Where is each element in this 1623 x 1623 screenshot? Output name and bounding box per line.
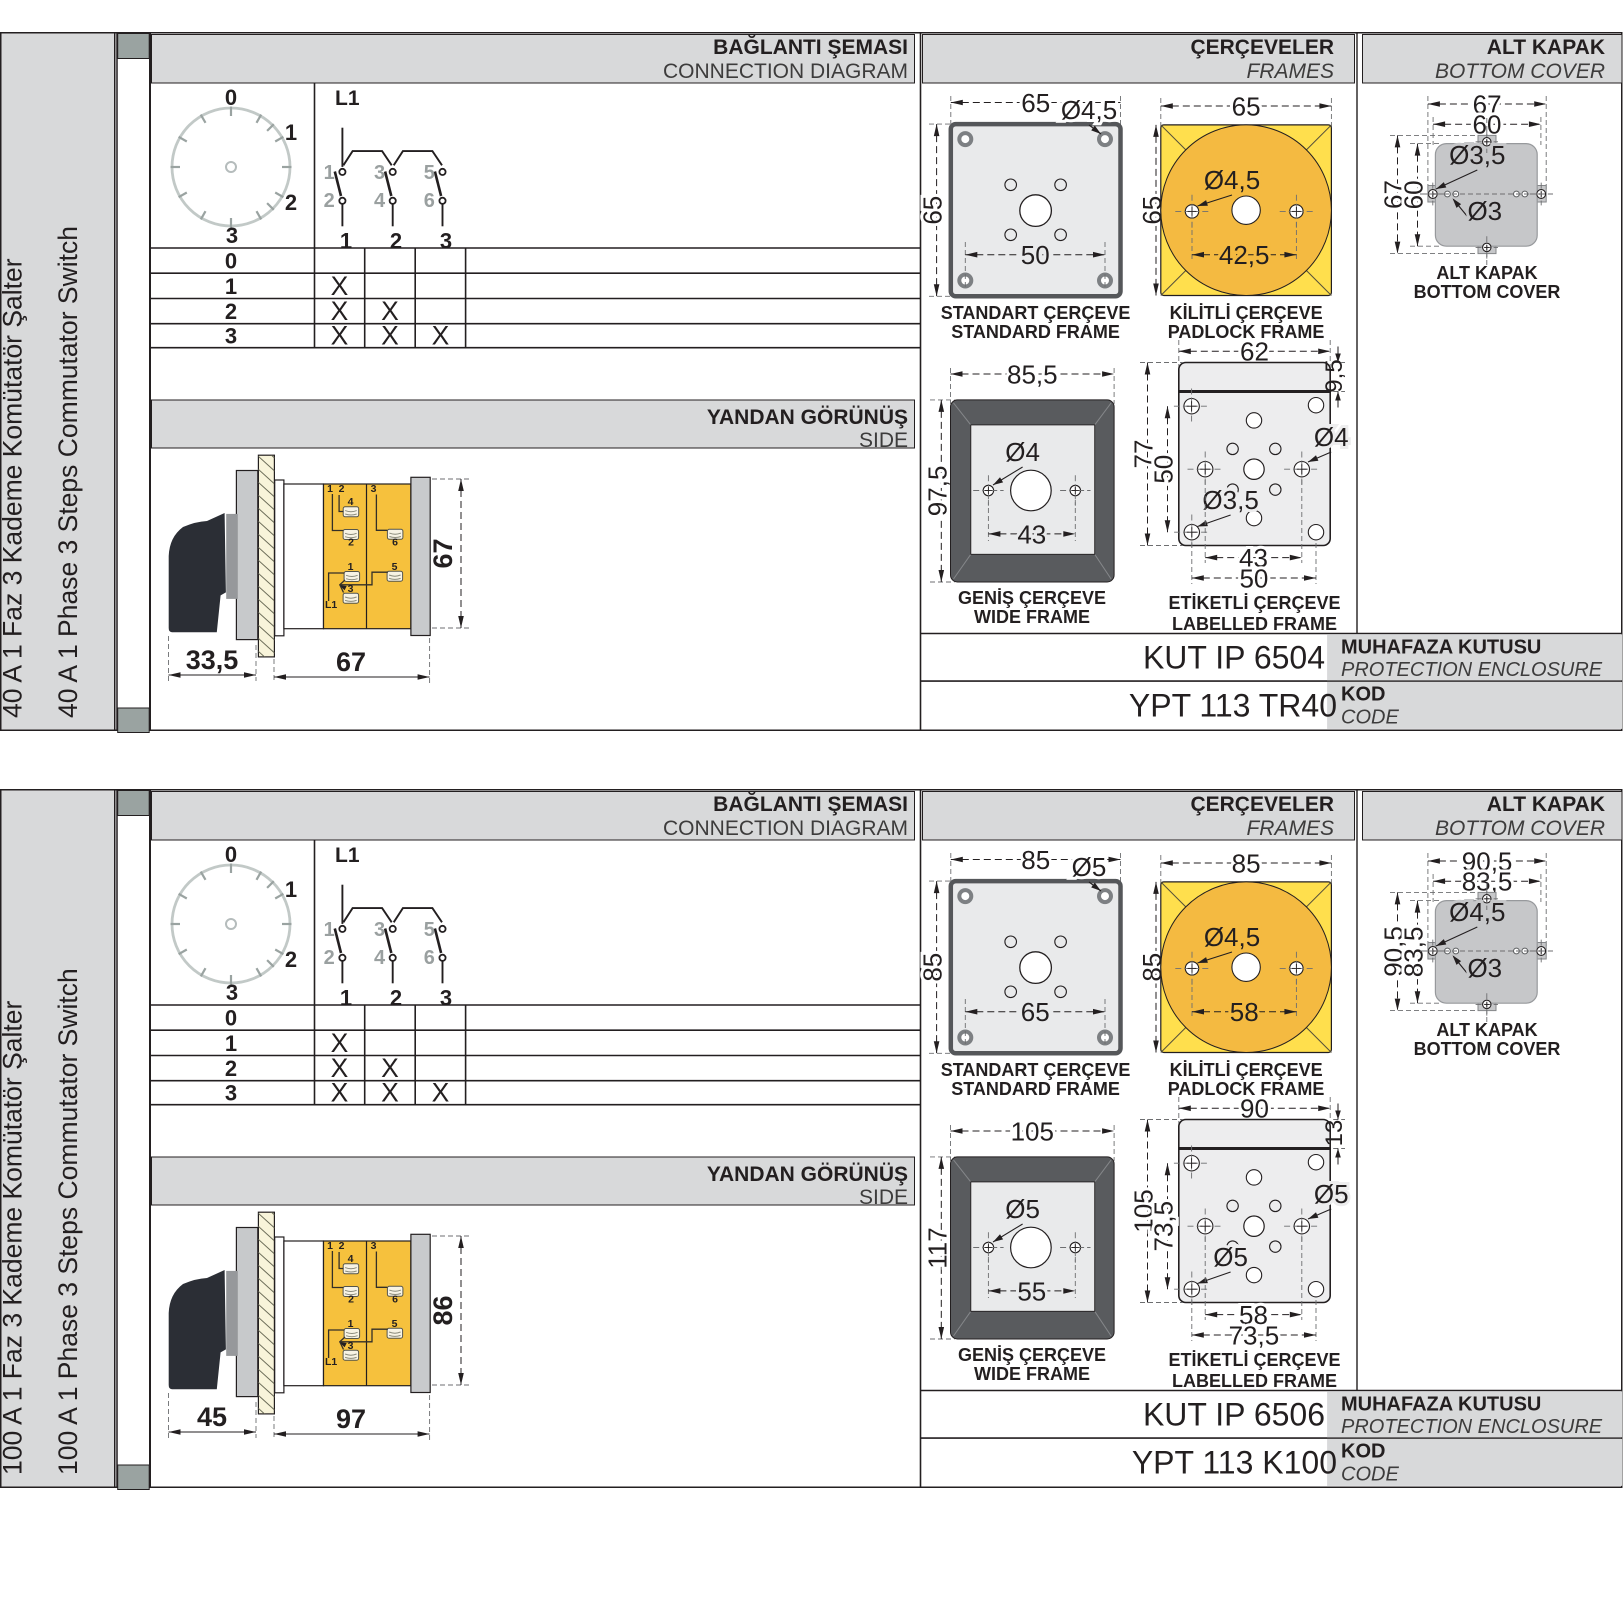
svg-text:4: 4 — [374, 190, 386, 212]
svg-text:BOTTOM COVER: BOTTOM COVER — [1414, 1039, 1561, 1059]
svg-text:50: 50 — [1021, 240, 1050, 270]
svg-text:2: 2 — [390, 229, 402, 254]
svg-text:97,5: 97,5 — [922, 466, 952, 517]
svg-text:85: 85 — [918, 953, 948, 982]
svg-text:L1: L1 — [335, 844, 360, 867]
svg-text:FRAMES: FRAMES — [1246, 60, 1334, 83]
svg-text:1: 1 — [285, 120, 297, 145]
svg-text:1: 1 — [348, 1318, 354, 1330]
svg-text:1: 1 — [225, 274, 237, 299]
svg-text:43: 43 — [1017, 519, 1046, 549]
svg-text:0: 0 — [225, 1006, 237, 1031]
svg-text:0: 0 — [225, 842, 237, 867]
svg-text:97: 97 — [336, 1404, 366, 1434]
svg-text:STANDARD FRAME: STANDARD FRAME — [951, 322, 1120, 342]
svg-text:3: 3 — [225, 324, 237, 349]
svg-text:40 A 1 Faz 3 Kademe Komütatör: 40 A 1 Faz 3 Kademe Komütatör Şalter — [0, 258, 28, 718]
svg-text:SIDE: SIDE — [859, 1186, 908, 1209]
svg-text:2: 2 — [324, 190, 335, 212]
svg-text:BOTTOM COVER: BOTTOM COVER — [1435, 60, 1605, 83]
svg-text:65: 65 — [1232, 91, 1261, 121]
svg-text:13: 13 — [1321, 1120, 1348, 1147]
svg-text:1: 1 — [327, 483, 333, 495]
svg-text:2: 2 — [225, 299, 237, 324]
svg-text:ETİKETLİ ÇERÇEVE: ETİKETLİ ÇERÇEVE — [1168, 1350, 1340, 1370]
svg-text:L1: L1 — [325, 1356, 337, 1368]
svg-text:60: 60 — [1399, 180, 1429, 209]
svg-text:KİLİTLİ ÇERÇEVE: KİLİTLİ ÇERÇEVE — [1170, 303, 1323, 323]
svg-text:6: 6 — [424, 190, 435, 212]
svg-text:3: 3 — [371, 483, 377, 495]
svg-text:50: 50 — [1239, 563, 1268, 593]
svg-text:40 A 1 Phase 3 Steps Commutato: 40 A 1 Phase 3 Steps Commutator Switch — [53, 226, 83, 718]
svg-text:73,5: 73,5 — [1149, 1201, 1179, 1252]
svg-text:X: X — [381, 321, 399, 351]
svg-text:Ø4: Ø4 — [1005, 437, 1040, 467]
svg-text:X: X — [331, 1078, 349, 1108]
svg-text:BOTTOM COVER: BOTTOM COVER — [1414, 282, 1561, 302]
svg-text:105: 105 — [1011, 1116, 1054, 1146]
svg-text:L1: L1 — [325, 599, 337, 611]
svg-text:ÇERÇEVELER: ÇERÇEVELER — [1190, 793, 1334, 816]
svg-text:0: 0 — [225, 249, 237, 274]
svg-text:3: 3 — [440, 229, 452, 254]
svg-text:YPT 113 K100: YPT 113 K100 — [1132, 1445, 1337, 1481]
svg-text:KUT IP 6504: KUT IP 6504 — [1143, 640, 1325, 676]
svg-text:MUHAFAZA KUTUSU: MUHAFAZA KUTUSU — [1341, 1394, 1541, 1416]
svg-text:ALT KAPAK: ALT KAPAK — [1487, 36, 1605, 59]
svg-text:CODE: CODE — [1341, 707, 1399, 729]
svg-text:1: 1 — [324, 919, 335, 941]
svg-text:3: 3 — [374, 162, 385, 184]
svg-text:STANDART ÇERÇEVE: STANDART ÇERÇEVE — [941, 303, 1131, 323]
svg-text:STANDARD FRAME: STANDARD FRAME — [951, 1079, 1120, 1099]
svg-text:X: X — [432, 1078, 450, 1108]
svg-text:Ø4,5: Ø4,5 — [1204, 165, 1260, 195]
svg-text:KUT IP 6506: KUT IP 6506 — [1143, 1397, 1325, 1433]
svg-text:PROTECTION ENCLOSURE: PROTECTION ENCLOSURE — [1341, 1416, 1603, 1438]
svg-text:ALT KAPAK: ALT KAPAK — [1436, 1020, 1537, 1040]
svg-text:83,5: 83,5 — [1399, 927, 1429, 978]
svg-text:X: X — [432, 321, 450, 351]
svg-text:85: 85 — [1232, 848, 1261, 878]
svg-text:ETİKETLİ ÇERÇEVE: ETİKETLİ ÇERÇEVE — [1168, 593, 1340, 613]
svg-text:4: 4 — [348, 1253, 354, 1265]
svg-text:55: 55 — [1017, 1276, 1046, 1306]
svg-text:Ø4: Ø4 — [1314, 422, 1349, 452]
svg-text:85: 85 — [1021, 845, 1050, 875]
svg-text:1: 1 — [327, 1240, 333, 1252]
svg-text:WIDE FRAME: WIDE FRAME — [974, 607, 1090, 627]
svg-text:FRAMES: FRAMES — [1246, 817, 1334, 840]
svg-text:3: 3 — [374, 919, 385, 941]
svg-text:X: X — [331, 321, 349, 351]
svg-text:4: 4 — [348, 496, 354, 508]
svg-text:Ø3,5: Ø3,5 — [1202, 485, 1258, 515]
svg-text:33,5: 33,5 — [186, 645, 239, 675]
svg-text:Ø3: Ø3 — [1467, 953, 1502, 983]
svg-text:3: 3 — [348, 1340, 354, 1352]
svg-text:1: 1 — [348, 561, 354, 573]
svg-text:X: X — [381, 1078, 399, 1108]
svg-text:CODE: CODE — [1341, 1464, 1399, 1486]
svg-text:65: 65 — [1021, 88, 1050, 118]
svg-text:5: 5 — [392, 1318, 398, 1330]
svg-text:6: 6 — [424, 947, 435, 969]
svg-text:2: 2 — [339, 483, 345, 495]
svg-text:45: 45 — [197, 1402, 227, 1432]
svg-text:1: 1 — [324, 162, 335, 184]
svg-text:LABELLED FRAME: LABELLED FRAME — [1172, 1371, 1337, 1391]
svg-text:Ø5: Ø5 — [1213, 1242, 1248, 1272]
svg-text:42,5: 42,5 — [1219, 240, 1270, 270]
svg-text:1: 1 — [340, 986, 352, 1011]
svg-text:3: 3 — [371, 1240, 377, 1252]
svg-text:1: 1 — [340, 229, 352, 254]
svg-text:2: 2 — [225, 1056, 237, 1081]
svg-text:58: 58 — [1230, 997, 1259, 1027]
svg-text:117: 117 — [922, 1227, 952, 1268]
svg-text:Ø4,5: Ø4,5 — [1061, 95, 1117, 125]
svg-text:KOD: KOD — [1341, 1441, 1385, 1463]
svg-text:KOD: KOD — [1341, 684, 1385, 706]
svg-text:2: 2 — [390, 986, 402, 1011]
svg-text:GENİŞ ÇERÇEVE: GENİŞ ÇERÇEVE — [958, 588, 1106, 608]
svg-text:2: 2 — [348, 1294, 354, 1306]
svg-text:5: 5 — [392, 561, 398, 573]
svg-text:BAĞLANTI ŞEMASI: BAĞLANTI ŞEMASI — [713, 35, 908, 59]
svg-text:3: 3 — [226, 980, 238, 1005]
svg-text:100 A 1 Faz 3 Kademe Komütatör: 100 A 1 Faz 3 Kademe Komütatör Şalter — [0, 1000, 28, 1475]
svg-text:2: 2 — [339, 1240, 345, 1252]
svg-text:MUHAFAZA KUTUSU: MUHAFAZA KUTUSU — [1341, 637, 1541, 659]
svg-text:YANDAN GÖRÜNÜŞ: YANDAN GÖRÜNÜŞ — [707, 1163, 908, 1186]
svg-text:PROTECTION ENCLOSURE: PROTECTION ENCLOSURE — [1341, 659, 1603, 681]
svg-text:5: 5 — [424, 162, 435, 184]
svg-text:50: 50 — [1149, 455, 1179, 484]
svg-text:BOTTOM COVER: BOTTOM COVER — [1435, 817, 1605, 840]
svg-text:65: 65 — [918, 196, 948, 225]
svg-text:CONNECTION DIAGRAM: CONNECTION DIAGRAM — [663, 60, 908, 83]
svg-text:1: 1 — [285, 877, 297, 902]
svg-text:Ø3: Ø3 — [1467, 196, 1502, 226]
svg-text:3: 3 — [348, 583, 354, 595]
svg-text:YPT 113 TR40: YPT 113 TR40 — [1129, 688, 1337, 724]
svg-text:GENİŞ ÇERÇEVE: GENİŞ ÇERÇEVE — [958, 1345, 1106, 1365]
svg-text:1: 1 — [225, 1031, 237, 1056]
svg-text:2: 2 — [348, 537, 354, 549]
svg-text:BAĞLANTI ŞEMASI: BAĞLANTI ŞEMASI — [713, 792, 908, 816]
svg-text:KİLİTLİ ÇERÇEVE: KİLİTLİ ÇERÇEVE — [1170, 1060, 1323, 1080]
svg-text:Ø5: Ø5 — [1314, 1179, 1349, 1209]
svg-text:5: 5 — [424, 919, 435, 941]
svg-text:ÇERÇEVELER: ÇERÇEVELER — [1190, 36, 1334, 59]
svg-text:WIDE FRAME: WIDE FRAME — [974, 1364, 1090, 1384]
svg-text:Ø4,5: Ø4,5 — [1449, 897, 1505, 927]
svg-text:2: 2 — [285, 190, 297, 215]
svg-text:6: 6 — [392, 1294, 398, 1306]
svg-text:L1: L1 — [335, 87, 360, 110]
svg-text:85,5: 85,5 — [1007, 359, 1058, 389]
svg-text:67: 67 — [336, 647, 366, 677]
svg-text:ALT KAPAK: ALT KAPAK — [1436, 263, 1537, 283]
svg-text:6: 6 — [392, 537, 398, 549]
svg-text:4: 4 — [374, 947, 386, 969]
svg-text:2: 2 — [324, 947, 335, 969]
svg-text:3: 3 — [225, 1081, 237, 1106]
svg-text:73,5: 73,5 — [1229, 1320, 1280, 1350]
svg-text:Ø5: Ø5 — [1005, 1194, 1040, 1224]
svg-text:67: 67 — [428, 538, 458, 568]
svg-text:CONNECTION DIAGRAM: CONNECTION DIAGRAM — [663, 817, 908, 840]
svg-text:3: 3 — [440, 986, 452, 1011]
svg-text:2: 2 — [285, 947, 297, 972]
svg-text:Ø4,5: Ø4,5 — [1204, 922, 1260, 952]
svg-text:100 A 1 Phase 3 Steps Commutat: 100 A 1 Phase 3 Steps Commutator Switch — [53, 968, 83, 1475]
svg-text:STANDART ÇERÇEVE: STANDART ÇERÇEVE — [941, 1060, 1131, 1080]
svg-text:SIDE: SIDE — [859, 429, 908, 452]
svg-text:YANDAN GÖRÜNÜŞ: YANDAN GÖRÜNÜŞ — [707, 406, 908, 429]
svg-text:3: 3 — [226, 223, 238, 248]
svg-text:LABELLED FRAME: LABELLED FRAME — [1172, 614, 1337, 634]
svg-text:65: 65 — [1021, 997, 1050, 1027]
svg-text:0: 0 — [225, 85, 237, 110]
svg-text:ALT KAPAK: ALT KAPAK — [1487, 793, 1605, 816]
svg-text:9,5: 9,5 — [1321, 359, 1348, 392]
svg-text:Ø3,5: Ø3,5 — [1449, 140, 1505, 170]
svg-text:Ø5: Ø5 — [1072, 852, 1107, 882]
svg-text:86: 86 — [428, 1295, 458, 1325]
